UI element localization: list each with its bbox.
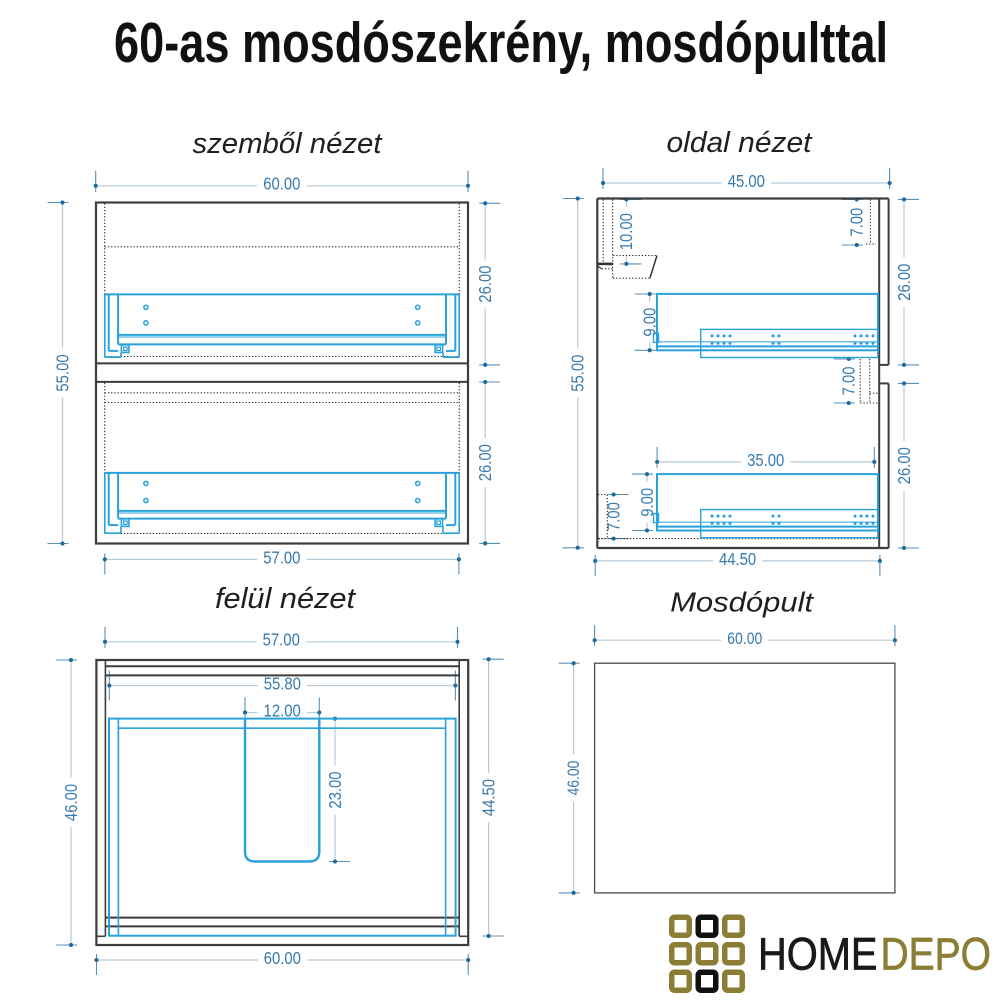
svg-text:45.00: 45.00 (728, 171, 765, 191)
svg-text:7.00: 7.00 (838, 366, 858, 395)
svg-text:DEPO: DEPO (881, 929, 992, 980)
svg-text:44.50: 44.50 (478, 779, 498, 816)
svg-text:55.00: 55.00 (567, 354, 587, 391)
svg-text:26.00: 26.00 (475, 265, 495, 302)
svg-text:23.00: 23.00 (325, 771, 345, 808)
svg-text:Mosdópult: Mosdópult (670, 587, 814, 618)
svg-text:46.00: 46.00 (61, 784, 81, 821)
svg-text:26.00: 26.00 (894, 447, 914, 484)
svg-text:57.00: 57.00 (263, 630, 300, 650)
svg-text:7.00: 7.00 (603, 502, 623, 531)
svg-text:57.00: 57.00 (263, 547, 300, 567)
svg-text:60.00: 60.00 (263, 174, 300, 194)
svg-text:felül nézet: felül nézet (215, 583, 357, 615)
svg-text:60.00: 60.00 (727, 630, 762, 648)
svg-text:9.00: 9.00 (637, 488, 657, 517)
svg-text:szemből nézet: szemből nézet (193, 128, 384, 160)
svg-text:oldal nézet: oldal nézet (667, 127, 814, 159)
svg-text:44.50: 44.50 (719, 549, 756, 569)
svg-text:12.00: 12.00 (264, 700, 301, 720)
svg-text:10.00: 10.00 (616, 213, 636, 250)
svg-text:46.00: 46.00 (565, 761, 583, 796)
svg-text:55.00: 55.00 (52, 354, 72, 391)
svg-text:7.00: 7.00 (846, 208, 866, 237)
svg-text:26.00: 26.00 (475, 444, 495, 481)
svg-text:26.00: 26.00 (894, 263, 914, 300)
svg-text:60.00: 60.00 (264, 948, 301, 968)
svg-text:35.00: 35.00 (747, 450, 784, 470)
svg-text:60-as mosdószekrény, mosdópult: 60-as mosdószekrény, mosdópulttal (114, 11, 888, 75)
svg-text:HOME: HOME (758, 929, 878, 980)
